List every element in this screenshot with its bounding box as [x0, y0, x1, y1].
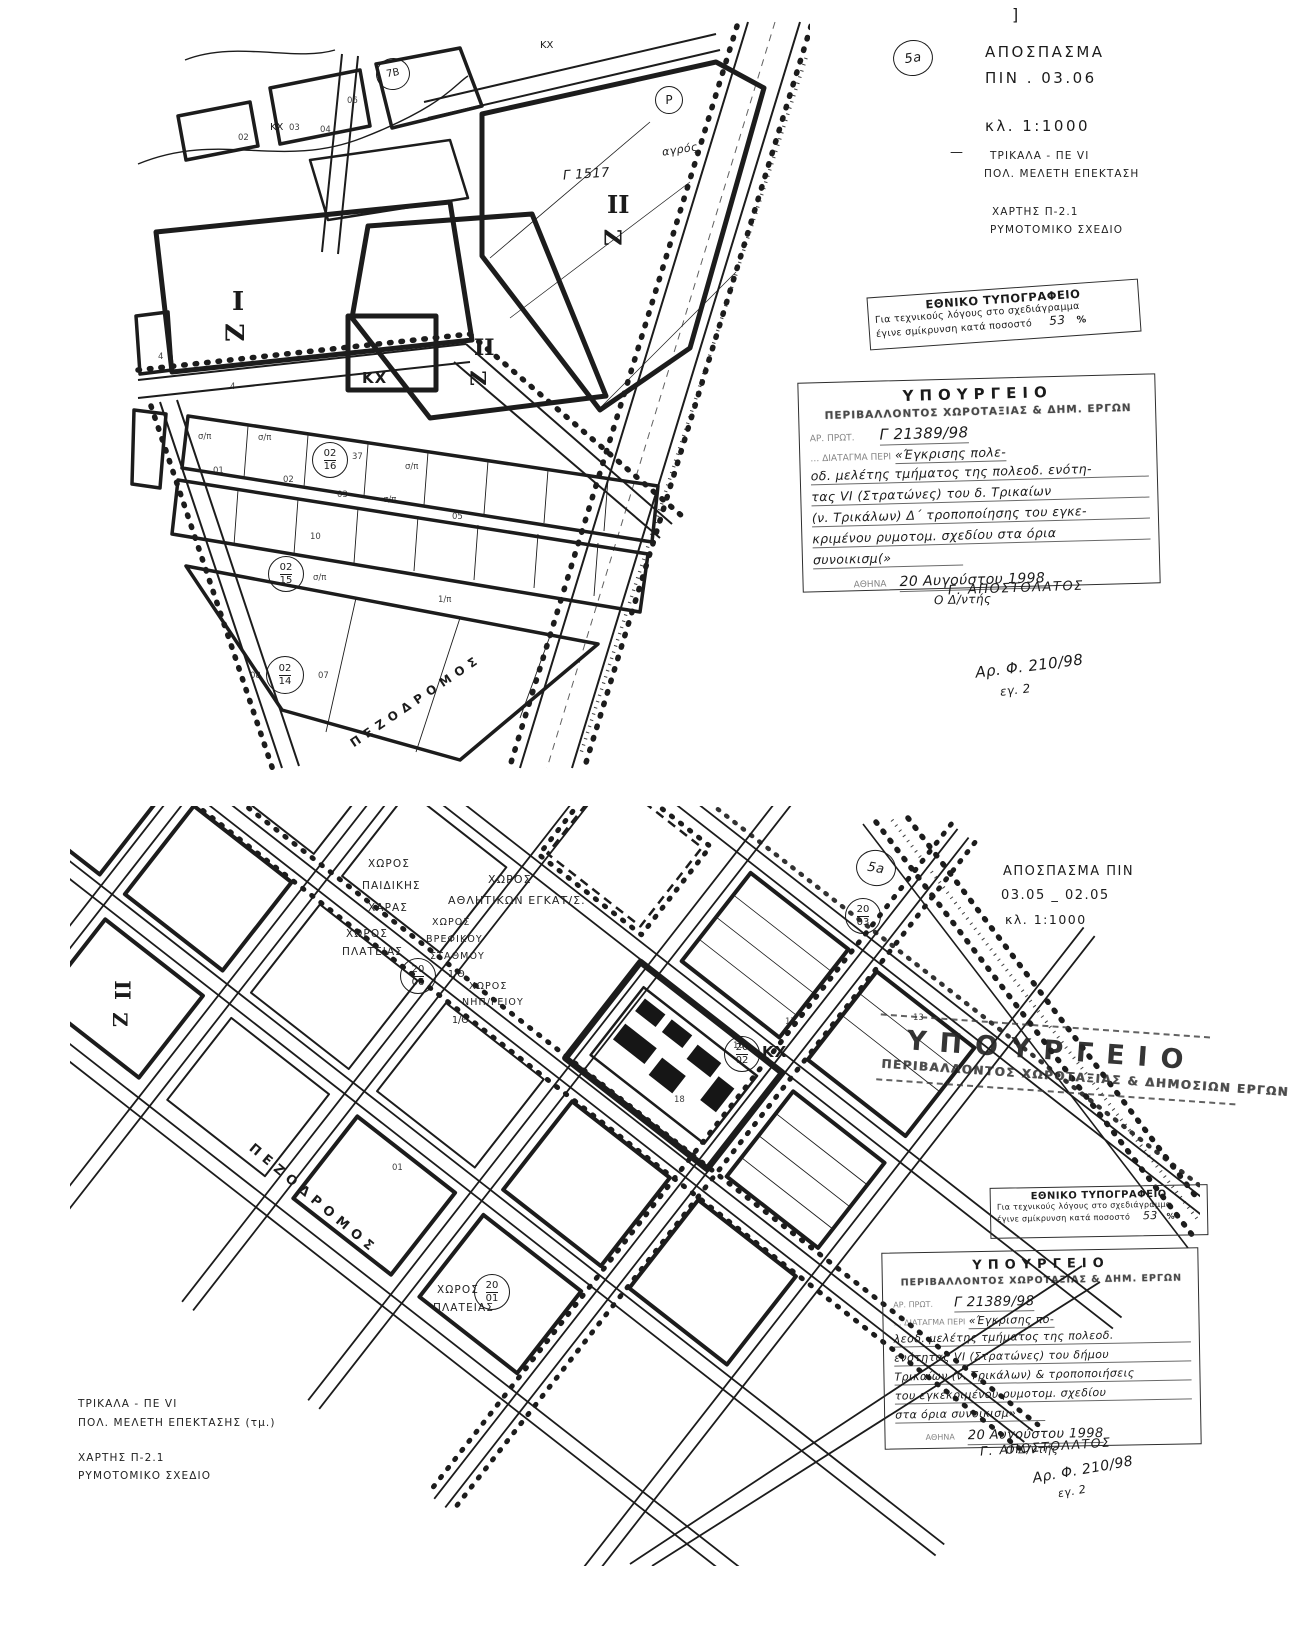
decree-subject-line: στα όρια συνοικισμ» [895, 1406, 1045, 1424]
block-number-badge: Ρ [655, 86, 683, 114]
use-tag: 1/π [438, 596, 451, 606]
parcel-number: 06 [347, 97, 358, 107]
classroom-count: 1/Θ [448, 970, 465, 981]
map-scale: κλ. 1:1000 [1005, 913, 1087, 927]
date-city: ΑΘΗΝΑ [854, 579, 887, 590]
use-tag: σ/π [313, 574, 326, 584]
parcel-number: 37 [352, 453, 363, 463]
land-use-label: ΧΑΡΑΣ [368, 902, 408, 914]
parcel-number: 10 [310, 533, 321, 543]
land-use-label: ΧΩΡΟΣ [368, 858, 410, 870]
date-city: ΑΘΗΝΑ [925, 1433, 954, 1443]
common-space-label: ΚΧ [762, 1044, 787, 1061]
decree-subject-line: του εγκεκριμένου ρυμοτομ. σχεδίου [895, 1384, 1192, 1404]
zone-label-letter: Ζ [598, 229, 624, 246]
block-number-badge: 02 16 [312, 442, 348, 478]
decree-subject-line: κριμένου ρυμοτομ. σχεδίου στα όρια [812, 523, 1150, 549]
land-use-label: ΧΩΡΟΣ [437, 1284, 479, 1296]
file-reference-copy: εγ. 2 [999, 682, 1031, 699]
parcel-number: 05 [452, 513, 463, 523]
excerpt-title: ΑΠΟΣΠΑΣΜΑ ΠΙΝ [1003, 865, 1134, 880]
parcel-number: 02 [283, 476, 294, 486]
excerpt-title: ΑΠΟΣΠΑΣΜΑ [985, 44, 1105, 61]
parcel-number: 18 [674, 1096, 685, 1106]
dimension-mark: 4 [158, 353, 163, 363]
parcel-number: 08 [250, 672, 261, 682]
common-space-label: ΚΧ [362, 370, 387, 387]
land-use-label: ΒΡΕΦΙΚΟΥ [426, 935, 483, 946]
block-number-badge: 20 03 [845, 898, 881, 934]
sheet-ref-badge: 5a [891, 37, 936, 78]
zone-label-letter: Ζ [108, 1012, 131, 1027]
classroom-count: 1/Θ [452, 1016, 469, 1027]
map-scale: κλ. 1:1000 [985, 118, 1090, 135]
legend-area: ΤΡΙΚΑΛΑ - ΠΕ VI [78, 1398, 177, 1410]
decree-subject-line: «Έγκρισης πο- [969, 1313, 1055, 1329]
zone-label-roman: ΙΙ [607, 191, 629, 219]
parcel-number: 16 [733, 1042, 744, 1052]
parcel-number: 17 [785, 1018, 796, 1028]
ministry-approval-stamp: ΥΠΟΥΡΓΕΙΟ ΠΕΡΙΒΑΛΛΟΝΤΟΣ ΧΩΡΟΤΑΞΙΑΣ & ΔΗΜ… [797, 373, 1160, 592]
decree-subject-line: συνοικισμ(» [813, 548, 963, 569]
protocol-label: ΑΡ. ΠΡΩΤ. [893, 1300, 933, 1310]
use-tag: σ/π [198, 433, 211, 443]
file-reference: Αρ. Φ. 210/98 [974, 651, 1084, 681]
use-tag: σ/π [383, 496, 396, 506]
excerpt-sheet-number: 03.05 _ 02.05 [1001, 889, 1110, 904]
zone-label-roman: ΙΙ [474, 336, 495, 361]
parcel-number: 01 [392, 1164, 403, 1174]
parcel-number: 03 [289, 124, 300, 134]
parcel-number: 02 [238, 134, 249, 144]
legend-study: ΠΟΛ. ΜΕΛΕΤΗ ΕΠΕΚΤΑΣΗΣ (τμ.) [78, 1417, 276, 1429]
protocol-number: Γ 21389/98 [879, 423, 968, 445]
national-printing-stamp: ΕΘΝΙΚΟ ΤΥΠΟΓΡΑΦΕΙΟ Για τεχνικούς λόγους … [990, 1184, 1209, 1239]
parcel-number: 07 [318, 672, 329, 682]
decree-subject-line: ενότητας VI (Στρατώνες) του δήμου [894, 1346, 1191, 1366]
legend-area: ΤΡΙΚΑΛΑ - ΠΕ VI [990, 150, 1089, 162]
land-use-label: ΣΤΑΘΜΟΥ [430, 952, 485, 963]
corner-mark: ] [1012, 6, 1018, 24]
printed-prefix: … ΔΙΑΤΑΓΜΑ ΠΕΡΙ [810, 452, 891, 464]
legend-plan-type: ΡΥΜΟΤΟΜΙΚΟ ΣΧΕΔΙΟ [990, 224, 1123, 236]
legend-study: ΠΟΛ. ΜΕΛΕΤΗ ΕΠΕΚΤΑΣΗ [984, 168, 1139, 180]
scanned-map-sheet: ] 5a ΑΠΟΣΠΑΣΜΑ ΠΙΝ . 03.06 κλ. 1:1000 — … [0, 0, 1297, 1636]
land-use-label: ΠΑΙΔΙΚΗΣ [362, 880, 421, 892]
decree-subject-line: Τρικαίων (ν. Τρικάλων) & τροποποιήσεις [894, 1365, 1191, 1385]
use-tag: σ/π [405, 463, 418, 473]
land-use-label: ΧΩΡΟΣ [469, 982, 507, 993]
legend-chart: ΧΑΡΤΗΣ Π-2.1 [78, 1452, 165, 1464]
zone-label-letter: Ζ [219, 323, 248, 341]
legend-dash: — [950, 146, 963, 161]
use-tag: σ/π [258, 434, 271, 444]
zone-label-roman: Ι [232, 288, 244, 318]
decree-subject-line: «Έγκρισης πολε- [895, 444, 1007, 464]
printed-prefix: … ΔΙΑΤΑΓΜΑ ΠΕΡΙ [893, 1317, 965, 1327]
zone-label-roman: ΙΙ [110, 980, 134, 1000]
common-space-label: ΚΧ [270, 122, 283, 134]
land-use-label: ΧΩΡΟΣ [432, 918, 470, 929]
ministry-approval-stamp: ΥΠΟΥΡΓΕΙΟ ΠΕΡΙΒΑΛΛΟΝΤΟΣ ΧΩΡΟΤΑΞΙΑΣ & ΔΗΜ… [881, 1247, 1201, 1450]
protocol-label: ΑΡ. ΠΡΩΤ. [810, 433, 855, 444]
legend-chart: ΧΑΡΤΗΣ Π-2.1 [992, 206, 1079, 218]
land-use-label: ΑΘΛΗΤΙΚΩΝ ΕΓΚΑΤ/Σ. [448, 895, 586, 908]
block-number-badge: 02 15 [268, 556, 304, 592]
block-number-badge: 02 14 [266, 656, 304, 694]
parcel-number: 03 [337, 491, 348, 501]
land-use-label: ΧΩΡΟΣ [488, 874, 532, 887]
parcel-number: 01 [213, 467, 224, 477]
zone-label-letter: Ζ [466, 370, 490, 385]
land-use-label: ΧΩΡΟΣ [346, 928, 388, 940]
legend-plan-type: ΡΥΜΟΤΟΜΙΚΟ ΣΧΕΔΙΟ [78, 1470, 211, 1482]
excerpt-sheet-number: ΠΙΝ . 03.06 [985, 70, 1097, 87]
block-number-badge: 20 01 [474, 1274, 510, 1310]
land-use-label: ΝΗΠ/ΓΕΙΟΥ [462, 998, 524, 1009]
decree-subject-line: λεοδ. μελέτης τμήματος της πολεοδ. [894, 1327, 1191, 1347]
land-use-label: ΠΛΑΤΕΙΑΣ [342, 946, 403, 958]
parcel-number: 04 [320, 126, 331, 136]
common-space-label: ΚΧ [540, 40, 553, 52]
block-number-badge: 20 06 [400, 958, 436, 994]
dimension-mark: 4 [230, 383, 235, 393]
protocol-number: Γ 21389/98 [954, 1293, 1035, 1312]
national-printing-stamp: ΕΘΝΙΚΟ ΤΥΠΟΓΡΑΦΕΙΟ Για τεχνικούς λόγους … [866, 279, 1141, 351]
